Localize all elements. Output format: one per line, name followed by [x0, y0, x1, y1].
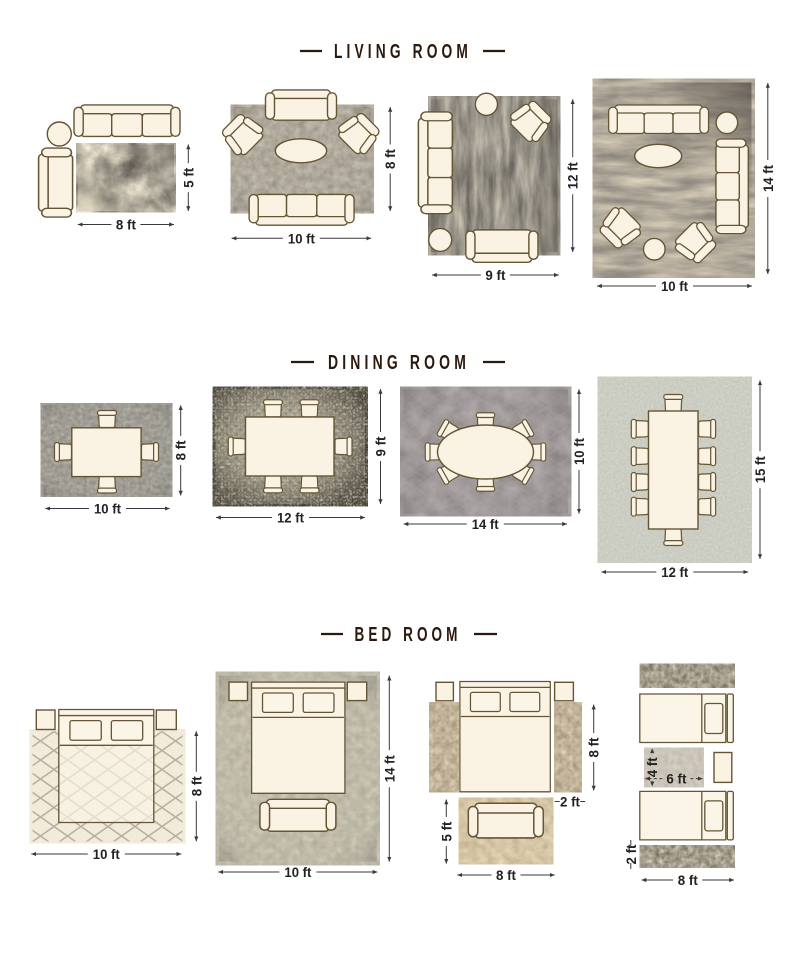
svg-text:8 ft: 8 ft — [586, 737, 602, 757]
svg-text:5 ft: 5 ft — [438, 821, 454, 841]
svg-text:12 ft: 12 ft — [565, 162, 581, 189]
svg-text:8 ft: 8 ft — [496, 867, 516, 883]
svg-text:15 ft: 15 ft — [752, 456, 768, 483]
svg-text:14 ft: 14 ft — [472, 516, 499, 532]
svg-text:5 ft: 5 ft — [180, 167, 196, 187]
svg-text:BED ROOM: BED ROOM — [355, 624, 462, 646]
svg-text:10 ft: 10 ft — [94, 501, 121, 517]
svg-text:6 ft: 6 ft — [666, 771, 686, 787]
svg-text:10 ft: 10 ft — [661, 278, 688, 294]
svg-text:10 ft: 10 ft — [93, 846, 120, 862]
svg-text:12 ft: 12 ft — [661, 564, 688, 580]
svg-text:14 ft: 14 ft — [760, 165, 776, 192]
svg-text:10 ft: 10 ft — [571, 438, 587, 465]
svg-text:2 ft: 2 ft — [623, 844, 639, 864]
svg-text:9 ft: 9 ft — [373, 436, 389, 456]
svg-text:10 ft: 10 ft — [284, 864, 311, 880]
svg-text:12 ft: 12 ft — [277, 510, 304, 526]
svg-text:10 ft: 10 ft — [288, 230, 315, 246]
svg-text:8 ft: 8 ft — [188, 776, 204, 796]
svg-text:LIVING ROOM: LIVING ROOM — [334, 41, 472, 63]
svg-text:9 ft: 9 ft — [485, 267, 505, 283]
svg-text:8 ft: 8 ft — [116, 217, 136, 233]
svg-text:8 ft: 8 ft — [173, 440, 189, 460]
svg-text:8 ft: 8 ft — [678, 872, 698, 888]
svg-text:14 ft: 14 ft — [381, 755, 397, 782]
svg-text:2 ft: 2 ft — [560, 794, 580, 810]
svg-text:4 ft: 4 ft — [644, 757, 660, 777]
svg-text:8 ft: 8 ft — [382, 149, 398, 169]
svg-text:DINING ROOM: DINING ROOM — [328, 352, 470, 374]
